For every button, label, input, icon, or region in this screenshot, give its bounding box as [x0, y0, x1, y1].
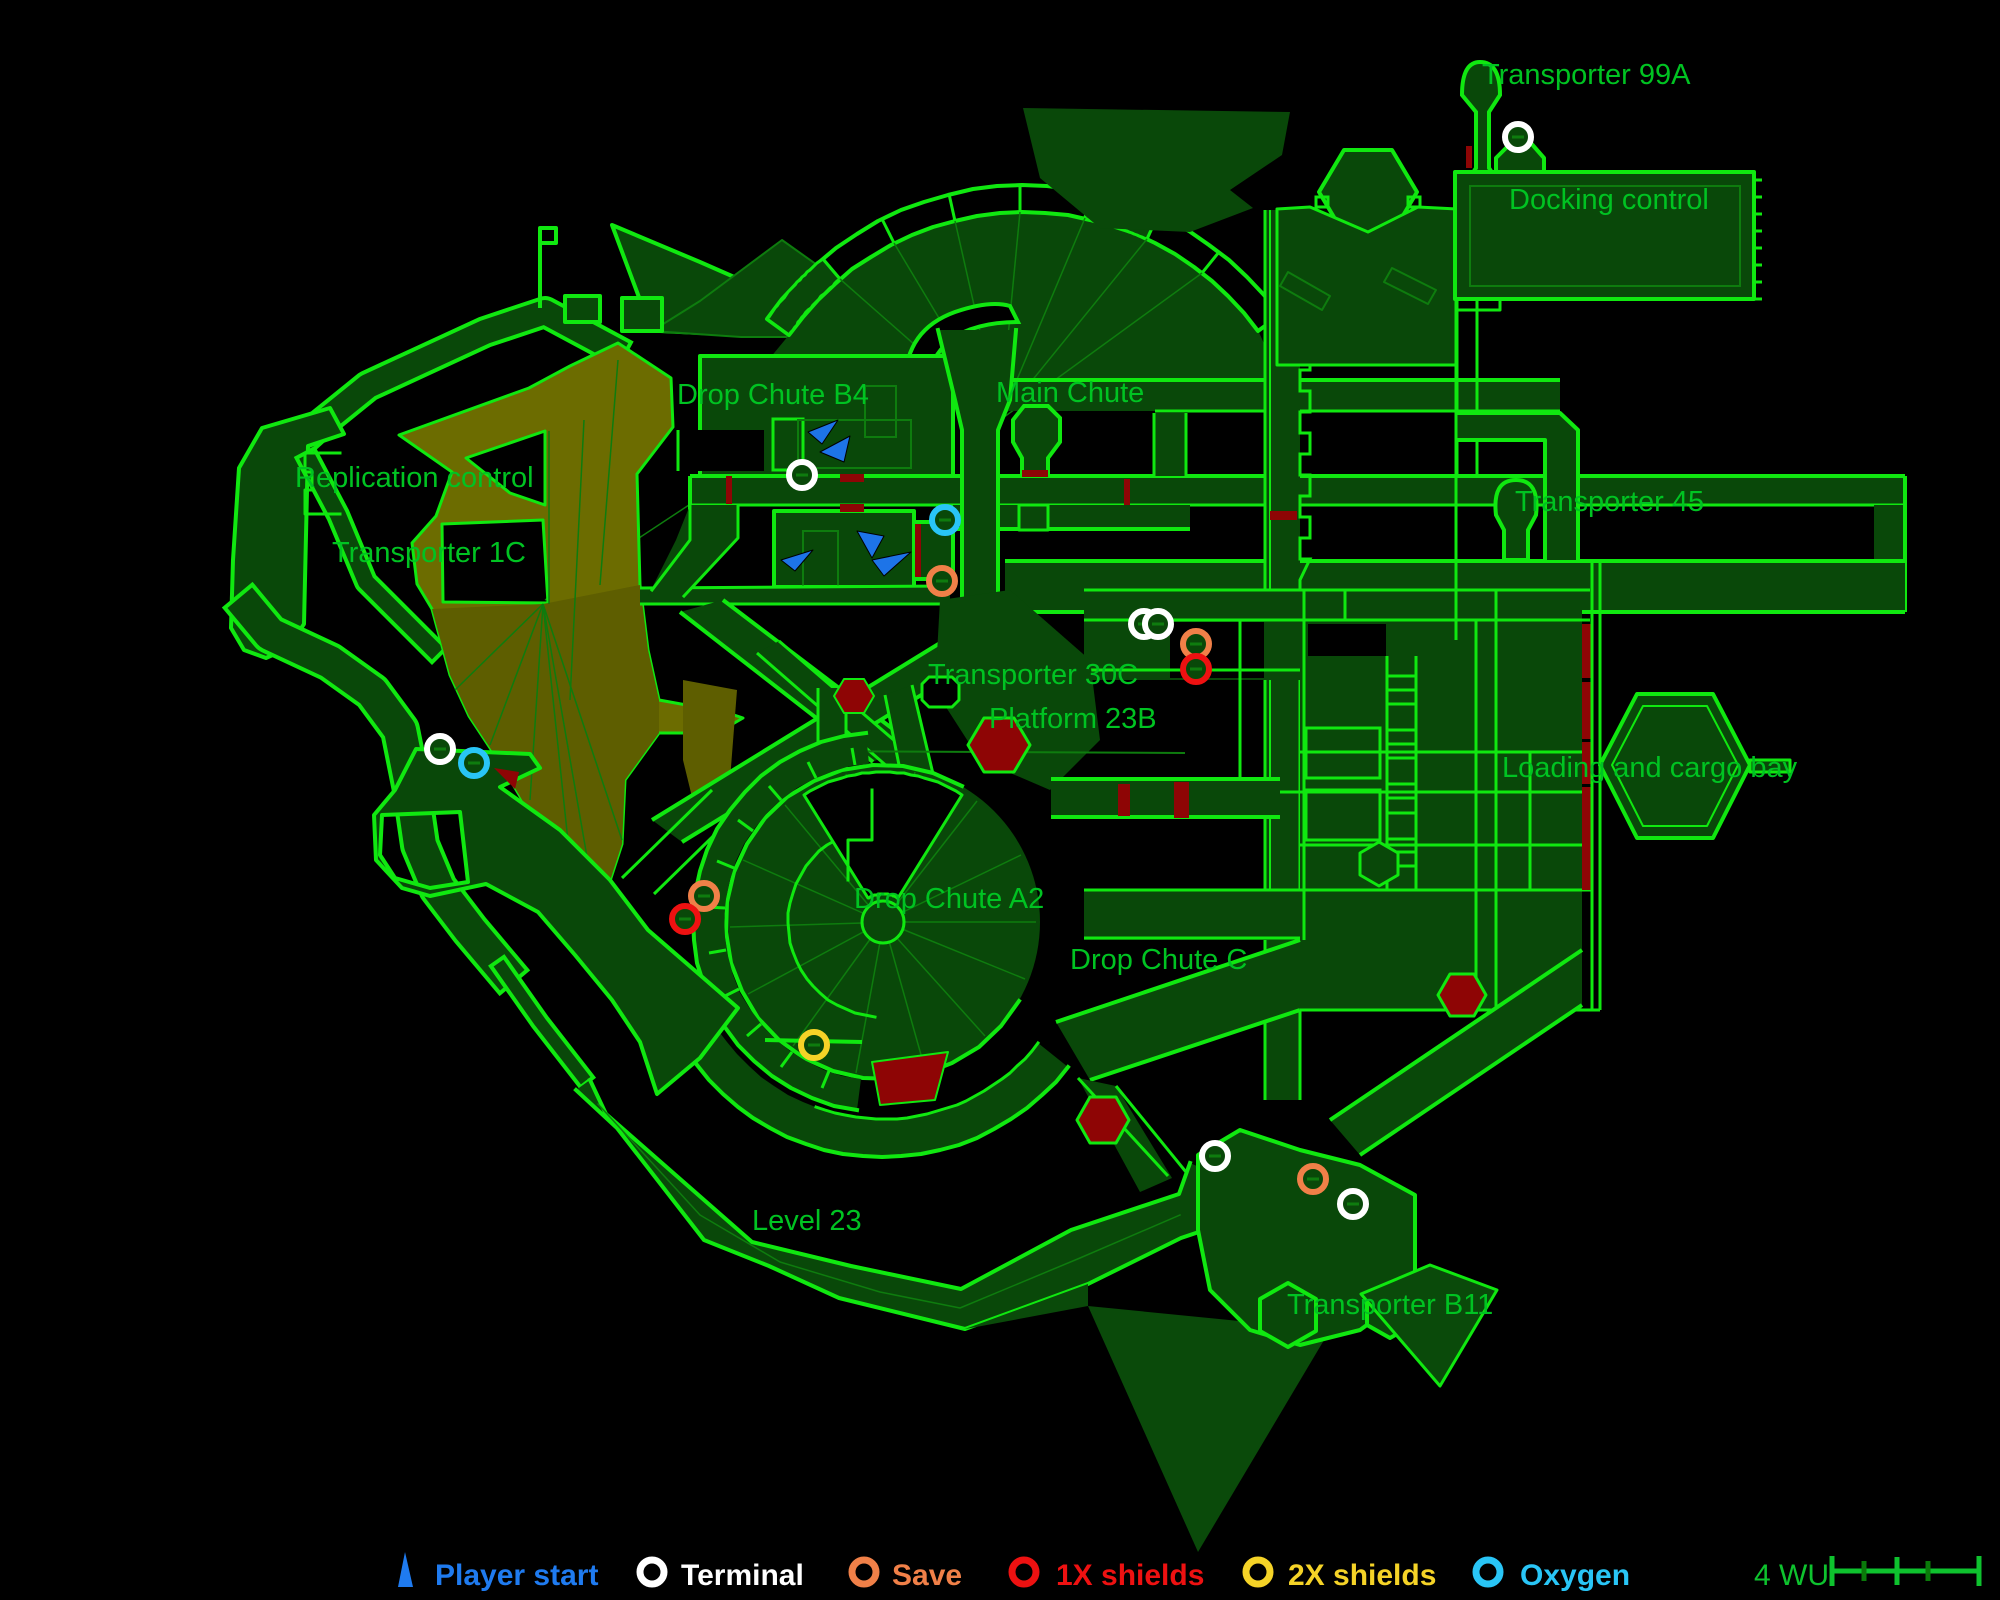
svg-text:Level 23: Level 23: [752, 1205, 862, 1237]
svg-text:Docking control: Docking control: [1509, 184, 1709, 216]
svg-text:Player start: Player start: [435, 1559, 598, 1592]
svg-text:Transporter B11: Transporter B11: [1287, 1289, 1493, 1321]
svg-text:1X shields: 1X shields: [1056, 1559, 1204, 1592]
svg-text:Drop Chute B4: Drop Chute B4: [677, 379, 869, 411]
svg-text:Save: Save: [892, 1559, 962, 1592]
svg-text:2X shields: 2X shields: [1288, 1559, 1436, 1592]
svg-text:Terminal: Terminal: [681, 1559, 804, 1592]
svg-text:Transporter 99A: Transporter 99A: [1482, 59, 1691, 91]
svg-text:Replication control: Replication control: [295, 462, 534, 494]
svg-text:4 WU: 4 WU: [1754, 1559, 1829, 1592]
svg-text:Drop Chute C: Drop Chute C: [1070, 944, 1247, 976]
svg-text:Transporter 1C: Transporter 1C: [332, 537, 526, 569]
svg-text:Transporter 30C: Transporter 30C: [928, 659, 1138, 691]
svg-text:Oxygen: Oxygen: [1520, 1559, 1630, 1592]
svg-text:Main Chute: Main Chute: [996, 377, 1144, 409]
svg-text:Drop Chute A2: Drop Chute A2: [854, 883, 1044, 915]
svg-text:Transporter 45: Transporter 45: [1515, 486, 1704, 518]
svg-text:Loading and cargo bay: Loading and cargo bay: [1502, 752, 1798, 784]
svg-text:Platform 23B: Platform 23B: [989, 703, 1157, 735]
